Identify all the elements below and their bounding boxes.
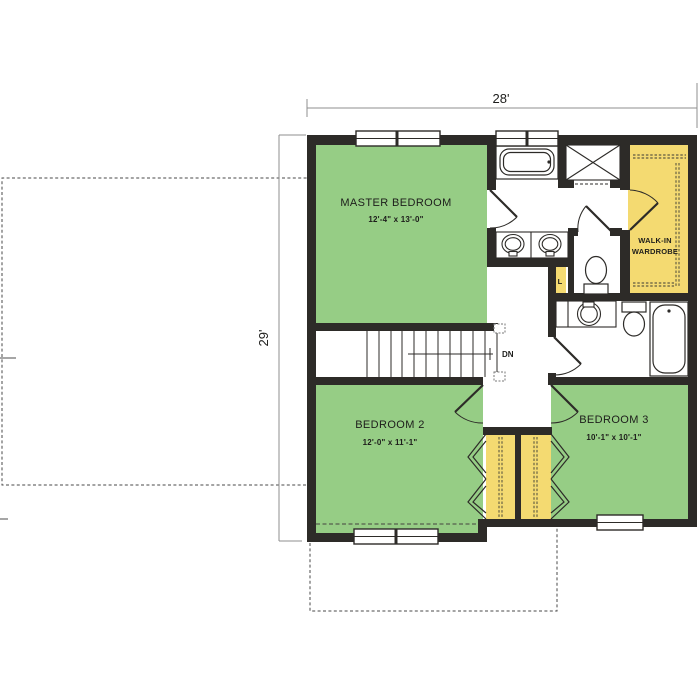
master-bedroom-floor xyxy=(316,145,487,323)
door-hall-bathroom xyxy=(554,337,581,375)
wall-left xyxy=(307,135,316,542)
wall-right xyxy=(688,135,697,527)
wall-closet-top xyxy=(483,427,552,435)
wall-bottom-right xyxy=(478,519,697,527)
stairs xyxy=(367,331,497,377)
wall-under-vanity xyxy=(487,258,572,267)
floor-plan-canvas: 28' 29' xyxy=(0,0,700,700)
window-bath-top xyxy=(496,131,558,146)
wall-bedroom3-top xyxy=(548,377,697,385)
height-dimension-line xyxy=(279,135,306,541)
linen-closet-label: L xyxy=(558,277,563,286)
stairs-down-label: DN xyxy=(502,350,514,359)
closet-right-floor xyxy=(521,433,551,519)
bedroom2-dims: 12'-0" x 11'-1" xyxy=(363,438,418,447)
door-master-bedroom xyxy=(490,190,517,228)
master-bedroom-label: MASTER BEDROOM xyxy=(340,197,451,209)
bedroom2-label: BEDROOM 2 xyxy=(355,419,425,431)
master-wc-toilet xyxy=(584,257,608,295)
floor-plan-svg: 28' 29' xyxy=(0,0,700,700)
wardrobe-label-line1: WALK-IN xyxy=(638,236,671,245)
width-dimension-label: 28' xyxy=(493,91,510,106)
wall-stairs-bottom xyxy=(316,377,483,385)
height-dimension-label: 29' xyxy=(256,330,271,347)
wall-wc-left xyxy=(568,228,574,301)
wall-hallbath-top xyxy=(554,293,697,301)
hallbath-vanity-sink xyxy=(556,301,616,327)
wall-stairs-top xyxy=(316,323,498,331)
master-bathtub xyxy=(496,146,558,179)
wall-shower-stub-right xyxy=(610,180,622,188)
shower xyxy=(566,145,620,184)
wardrobe-label-line2: WARDROBE xyxy=(632,247,678,256)
wall-wardrobe-left-lower xyxy=(620,230,630,301)
bedroom3-label: BEDROOM 3 xyxy=(579,414,649,426)
window-bedroom2-bottom xyxy=(354,529,438,544)
wall-closet-center xyxy=(515,435,521,519)
hallbath-toilet xyxy=(622,302,646,336)
bedroom3-dims: 10'-1" x 10'-1" xyxy=(586,433,641,442)
bedroom2-floor xyxy=(316,385,483,533)
window-bedroom3-bottom xyxy=(597,515,643,530)
door-master-wc xyxy=(578,206,612,232)
wall-hall-right-upper xyxy=(548,267,556,337)
wall-shower-stub-left xyxy=(558,180,574,188)
wall-tub-shower-divider xyxy=(558,145,566,181)
master-vanity-double-sink xyxy=(496,232,568,258)
master-bedroom-dims: 12'-4" x 13'-0" xyxy=(368,215,423,224)
wall-master-right-upper xyxy=(487,143,496,190)
hallbath-bathtub xyxy=(650,302,688,376)
closet-left-floor xyxy=(486,433,515,519)
window-master-top xyxy=(356,131,440,146)
